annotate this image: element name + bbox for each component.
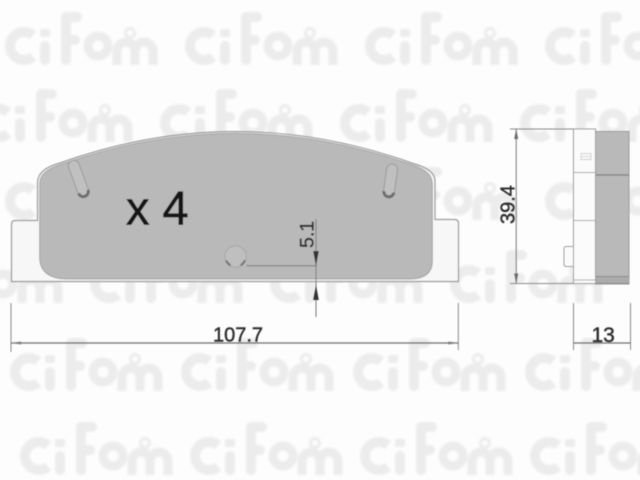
svg-text:5.1: 5.1 xyxy=(297,221,319,248)
svg-text:39.4: 39.4 xyxy=(498,185,520,224)
svg-text:x 4: x 4 xyxy=(126,182,189,235)
svg-text:13: 13 xyxy=(592,324,615,347)
svg-text:107.7: 107.7 xyxy=(213,325,263,347)
